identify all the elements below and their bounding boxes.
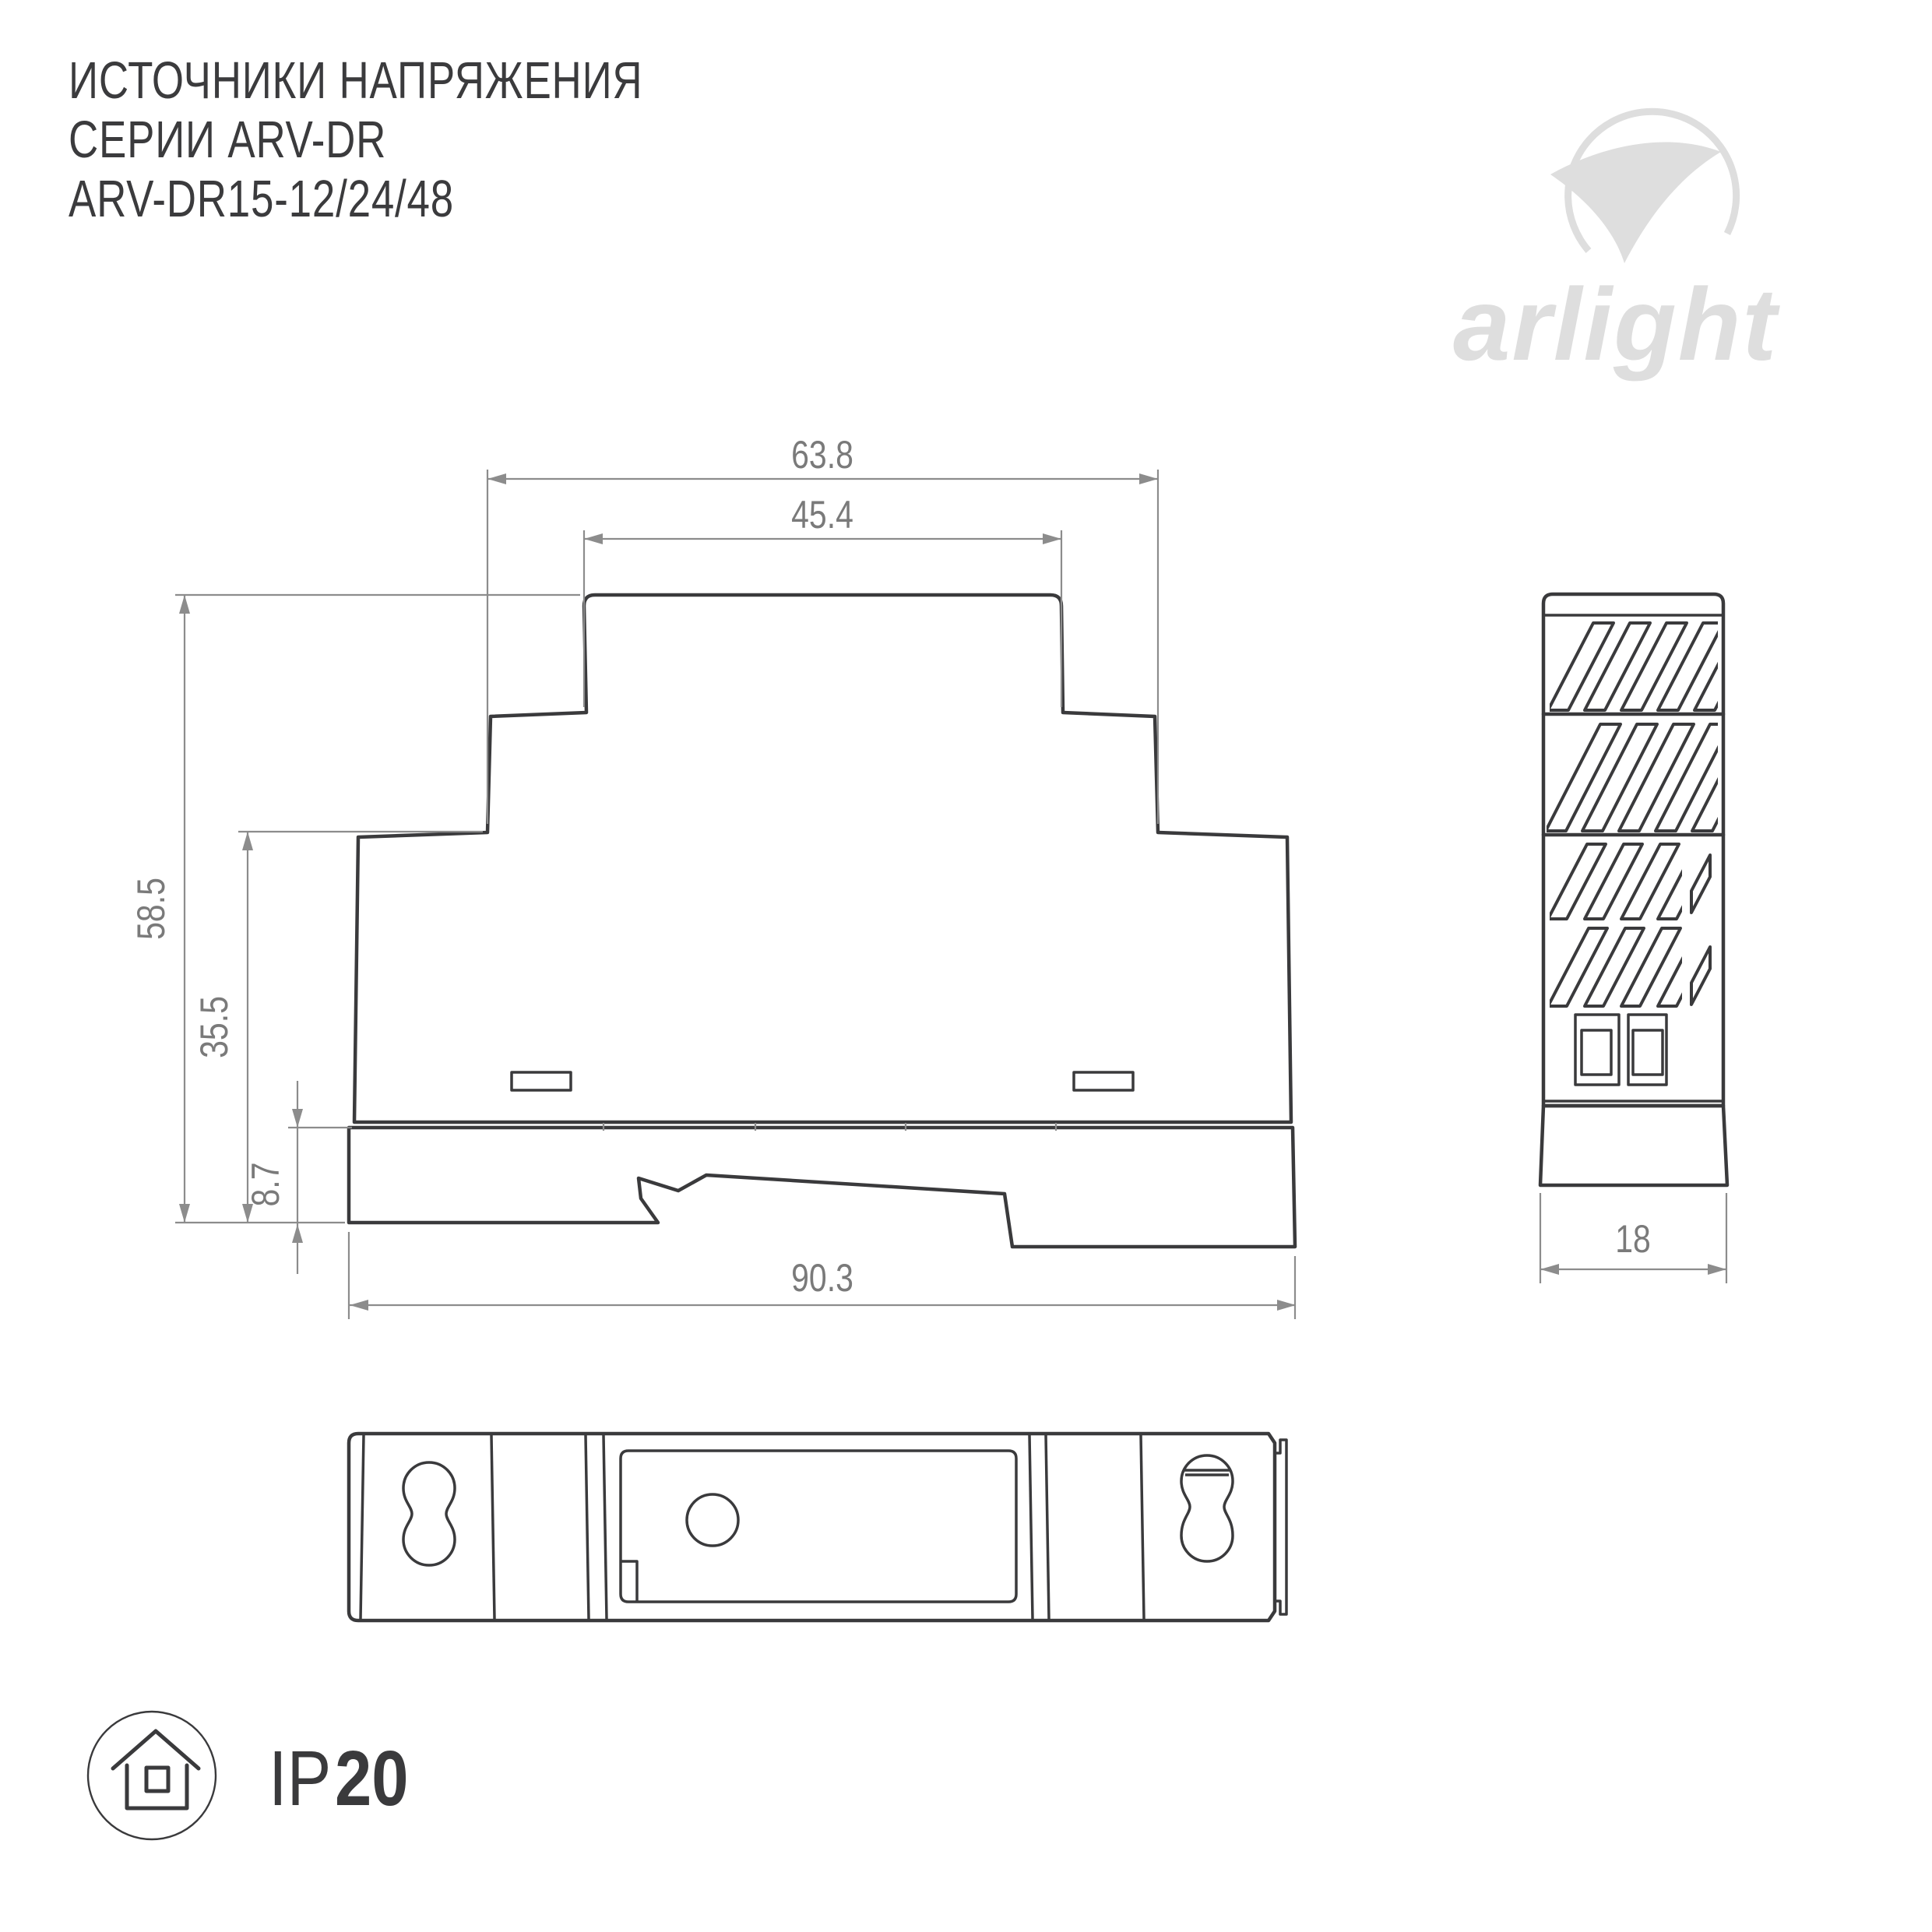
side-vent-right-col [1691, 855, 1710, 913]
logo-wordmark: arlight [1453, 267, 1780, 382]
bottom-divider [491, 1435, 494, 1619]
bottom-divider [1141, 1435, 1144, 1619]
bottom-divider [586, 1435, 589, 1619]
technical-drawing: arlight 63.8 [0, 0, 1932, 1932]
house-icon [113, 1731, 199, 1808]
front-body-outline [354, 595, 1291, 1122]
keyhole-slot-left [403, 1462, 455, 1565]
front-base-outline [349, 1128, 1295, 1247]
terminal-block-right-inner [1633, 1030, 1663, 1075]
brand-logo: arlight [1453, 111, 1780, 382]
dim-label-bottom-width: 90.3 [791, 1256, 853, 1300]
bottom-hole [687, 1494, 738, 1546]
bottom-view [349, 1434, 1286, 1621]
dim-label-base-height: 8.7 [244, 1163, 287, 1207]
ip-rating: IP 20 [269, 1734, 409, 1821]
dim-label-total-height: 58.5 [129, 878, 173, 940]
terminal-block-left-inner [1582, 1030, 1611, 1075]
bottom-outline [349, 1434, 1275, 1621]
front-slot-right [1074, 1072, 1133, 1090]
page: ИСТОЧНИКИ НАПРЯЖЕНИЯ СЕРИИ ARV-DR ARV-DR… [0, 0, 1932, 1932]
dim-label-outer-top-width: 63.8 [791, 433, 853, 477]
side-vent-band-1 [1548, 623, 1760, 710]
side-base-outline [1540, 1106, 1727, 1185]
side-vent-right-col [1691, 947, 1710, 1005]
dim-label-body-height: 35.5 [192, 996, 236, 1058]
bottom-label-recess [621, 1451, 1016, 1602]
front-slot-left [512, 1072, 571, 1090]
badge-circle [88, 1712, 216, 1839]
side-view: 18 [1540, 594, 1804, 1283]
bottom-divider [1046, 1435, 1049, 1619]
recess-notch [621, 1561, 637, 1602]
bottom-divider [604, 1435, 607, 1619]
front-view [349, 595, 1295, 1247]
ip-badge: IP 20 [88, 1712, 409, 1839]
bottom-left-flange-line [361, 1435, 364, 1619]
dim-label-depth: 18 [1615, 1217, 1651, 1261]
dim-label-cap-width: 45.4 [791, 493, 853, 537]
ip-prefix: IP [269, 1734, 331, 1821]
side-vent-band-2 [1546, 724, 1804, 831]
bottom-divider [1029, 1435, 1033, 1619]
front-view-dimensions: 63.8 45.4 58.5 [129, 433, 1296, 1319]
ip-value: 20 [335, 1734, 409, 1821]
